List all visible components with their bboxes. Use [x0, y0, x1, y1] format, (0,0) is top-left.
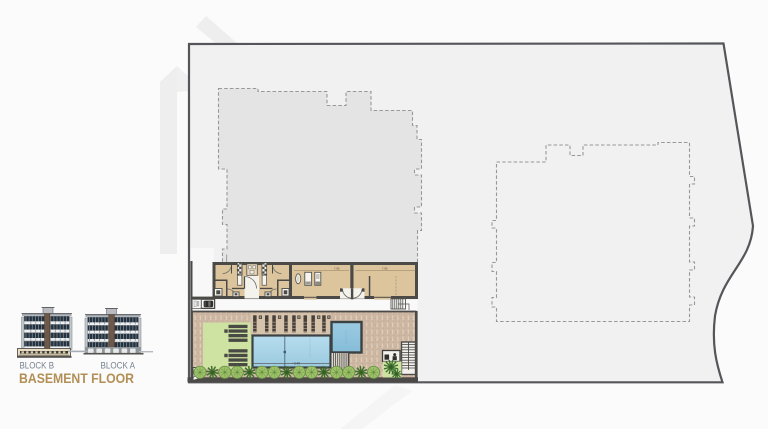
svg-text:7.85: 7.85: [334, 266, 340, 270]
svg-text:7.85: 7.85: [382, 266, 388, 270]
svg-text:KIDS POOL: KIDS POOL: [344, 329, 348, 344]
svg-text:BLOCK B: BLOCK B: [20, 360, 55, 370]
svg-text:+3.40: +3.40: [292, 362, 300, 366]
svg-text:BASEMENT FLOOR: BASEMENT FLOOR: [19, 370, 134, 386]
svg-text:BLOCK A: BLOCK A: [101, 360, 136, 370]
svg-text:SWIMMING POOL: SWIMMING POOL: [308, 336, 312, 358]
